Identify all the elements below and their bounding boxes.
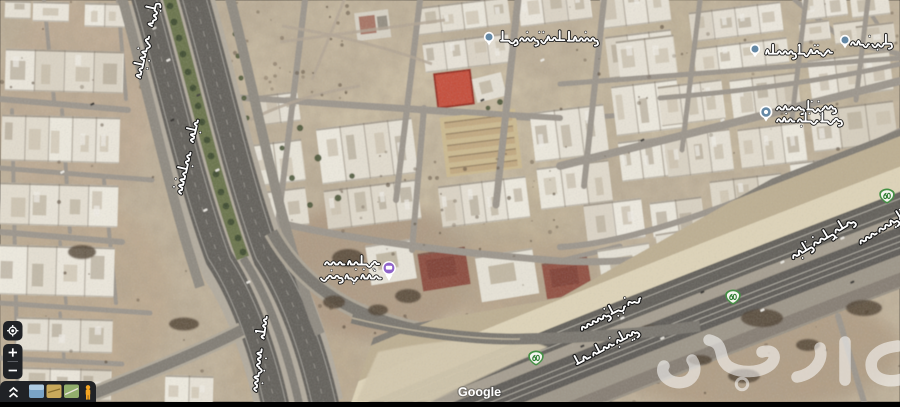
svg-text:Google: Google bbox=[458, 385, 501, 399]
